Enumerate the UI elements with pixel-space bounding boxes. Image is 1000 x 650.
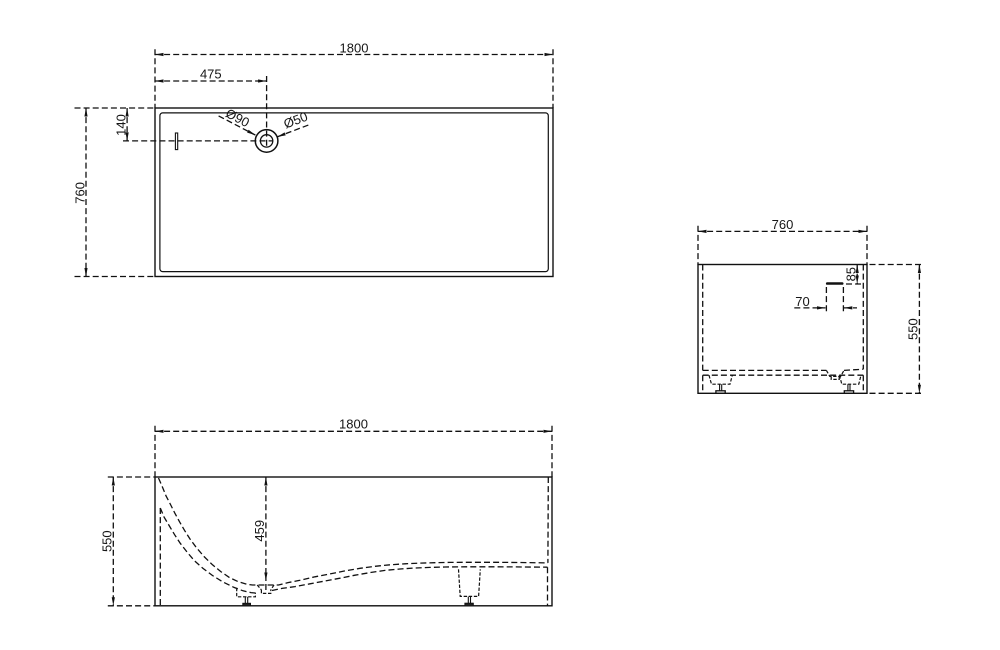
svg-text:85: 85	[843, 267, 858, 281]
svg-text:1800: 1800	[339, 417, 368, 432]
svg-text:70: 70	[795, 294, 809, 309]
svg-text:550: 550	[100, 530, 115, 552]
svg-text:459: 459	[252, 520, 267, 542]
svg-text:550: 550	[906, 318, 921, 340]
svg-text:760: 760	[72, 182, 87, 204]
svg-text:475: 475	[200, 66, 222, 81]
svg-text:760: 760	[772, 217, 794, 232]
svg-text:Ø50: Ø50	[281, 109, 309, 132]
svg-text:1800: 1800	[340, 40, 369, 55]
svg-text:140: 140	[114, 114, 129, 136]
